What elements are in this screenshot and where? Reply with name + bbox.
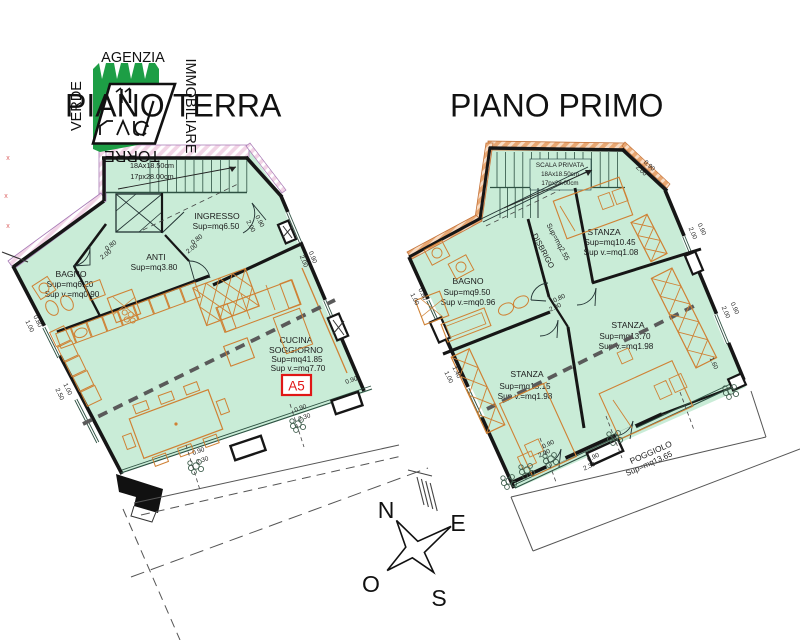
svg-text:STANZA: STANZA <box>587 227 621 237</box>
svg-text:AGENZIA: AGENZIA <box>101 50 165 66</box>
svg-text:BAGNO: BAGNO <box>55 269 86 279</box>
svg-text:Sup=mq41.85: Sup=mq41.85 <box>271 355 323 364</box>
svg-text:STANZA: STANZA <box>611 320 645 330</box>
svg-text:STANZA: STANZA <box>510 369 544 379</box>
svg-text:TORRE: TORRE <box>104 147 160 164</box>
svg-text:BAGNO: BAGNO <box>452 276 483 286</box>
svg-text:Sup v.=mq1.98: Sup v.=mq1.98 <box>599 342 654 351</box>
svg-text:CUCINA: CUCINA <box>280 335 313 345</box>
svg-text:PIANO TERRA: PIANO TERRA <box>65 88 282 124</box>
svg-text:Sup v.=mq0.96: Sup v.=mq0.96 <box>441 298 496 307</box>
svg-text:x: x <box>4 193 8 200</box>
svg-text:Sup v.=mq7.70: Sup v.=mq7.70 <box>271 364 326 373</box>
svg-text:x: x <box>6 223 10 230</box>
svg-text:E: E <box>450 510 465 536</box>
svg-text:x: x <box>6 155 10 162</box>
svg-text:PIANO PRIMO: PIANO PRIMO <box>450 88 663 124</box>
svg-text:A5: A5 <box>288 379 305 394</box>
svg-text:ANTI: ANTI <box>146 252 166 262</box>
svg-text:Sup=mq10.45: Sup=mq10.45 <box>584 238 636 247</box>
svg-text:Sup v.=mq1.08: Sup v.=mq1.08 <box>584 248 639 257</box>
svg-text:N: N <box>378 497 395 523</box>
svg-text:SCALA PRIVATA: SCALA PRIVATA <box>536 162 585 169</box>
svg-text:Sup=mq3.80: Sup=mq3.80 <box>131 263 178 272</box>
svg-text:INGRESSO: INGRESSO <box>194 211 240 221</box>
svg-text:S: S <box>431 585 446 611</box>
svg-text:O: O <box>362 571 380 597</box>
svg-text:Sup=mq6.50: Sup=mq6.50 <box>193 222 240 231</box>
svg-text:Sup=mq9.50: Sup=mq9.50 <box>444 288 491 297</box>
svg-text:17px28.00cm: 17px28.00cm <box>130 172 173 181</box>
